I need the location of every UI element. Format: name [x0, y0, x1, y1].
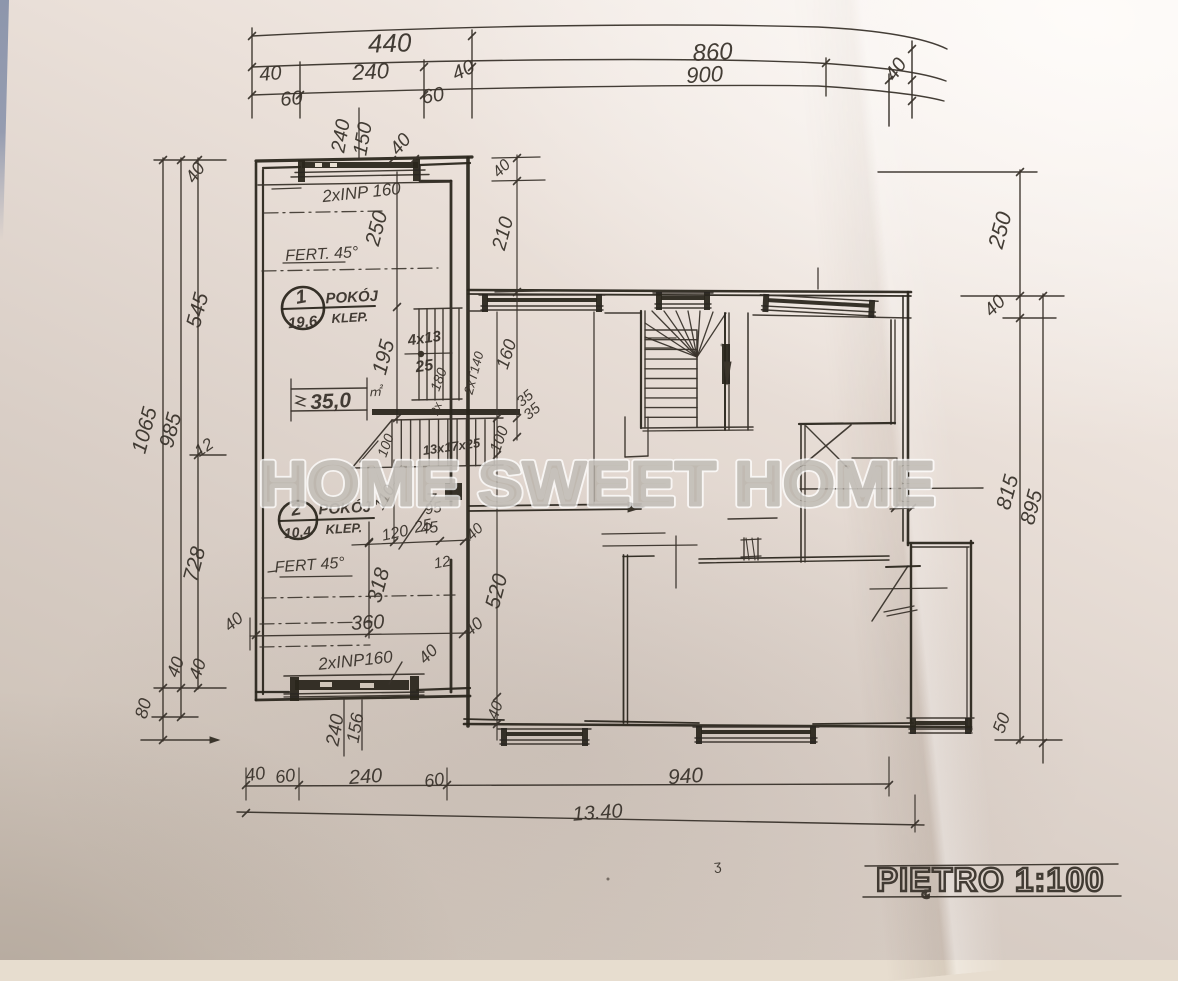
svg-text:250: 250	[983, 208, 1017, 252]
svg-text:45: 45	[419, 519, 439, 538]
svg-text:40: 40	[881, 54, 912, 85]
svg-text:40: 40	[415, 640, 442, 667]
svg-text:50: 50	[989, 710, 1015, 736]
svg-text:318: 318	[363, 565, 394, 605]
svg-text:40: 40	[244, 763, 267, 786]
svg-text:2x: 2x	[427, 399, 445, 418]
svg-text:60: 60	[274, 765, 297, 788]
svg-text:35,0: 35,0	[310, 389, 352, 414]
svg-text:815: 815	[992, 472, 1023, 512]
svg-text:ʒ: ʒ	[713, 857, 722, 874]
svg-text:12: 12	[433, 553, 453, 573]
svg-text:728: 728	[179, 544, 210, 584]
svg-text:40: 40	[485, 699, 507, 722]
svg-text:195: 195	[368, 337, 399, 377]
svg-text:40: 40	[490, 156, 515, 181]
svg-text:PIĘTRO 1:100: PIĘTRO 1:100	[876, 861, 1104, 898]
svg-text:㎡: ㎡	[368, 384, 385, 400]
svg-text:KLEP.: KLEP.	[325, 520, 362, 537]
svg-text:240: 240	[351, 58, 391, 85]
svg-text:156: 156	[343, 710, 368, 744]
svg-text:360: 360	[350, 611, 384, 635]
svg-text:60: 60	[423, 769, 446, 792]
svg-text:60: 60	[420, 83, 446, 109]
svg-text:2xINP160: 2xINP160	[316, 647, 394, 674]
svg-text:900: 900	[686, 61, 725, 88]
svg-text:440: 440	[367, 27, 412, 59]
svg-text:1065: 1065	[128, 404, 162, 455]
svg-text:160: 160	[492, 337, 520, 372]
svg-text:FERT 45°: FERT 45°	[274, 555, 346, 577]
svg-text:250: 250	[361, 208, 393, 249]
svg-text:4x13: 4x13	[406, 328, 443, 350]
svg-text:KLEP.: KLEP.	[331, 309, 368, 326]
svg-text:545: 545	[182, 290, 213, 330]
svg-text:1: 1	[294, 286, 308, 309]
svg-text:POKÓJ: POKÓJ	[325, 287, 379, 308]
svg-text:120: 120	[380, 522, 410, 544]
svg-text:19,6: 19,6	[287, 313, 318, 333]
svg-text:40: 40	[386, 129, 416, 159]
svg-text:10,4: 10,4	[283, 523, 312, 541]
svg-text:40: 40	[460, 613, 487, 640]
svg-text:940: 940	[667, 764, 704, 789]
svg-text:40: 40	[185, 656, 211, 682]
svg-text:2xINP 160: 2xINP 160	[320, 179, 402, 206]
svg-text:240: 240	[347, 765, 383, 789]
svg-text:13.40: 13.40	[572, 800, 623, 825]
svg-text:40: 40	[220, 608, 247, 635]
svg-text:40: 40	[181, 159, 209, 187]
svg-text:520: 520	[481, 571, 512, 611]
svg-text:210: 210	[488, 214, 518, 253]
svg-text:2xT140: 2xT140	[461, 349, 487, 396]
svg-text:HOME SWEET HOME: HOME SWEET HOME	[259, 450, 935, 519]
svg-text:40: 40	[163, 654, 189, 680]
svg-text:60: 60	[279, 87, 303, 111]
svg-text:150: 150	[349, 121, 376, 158]
svg-text:12: 12	[191, 434, 218, 461]
svg-text:40: 40	[258, 62, 282, 86]
